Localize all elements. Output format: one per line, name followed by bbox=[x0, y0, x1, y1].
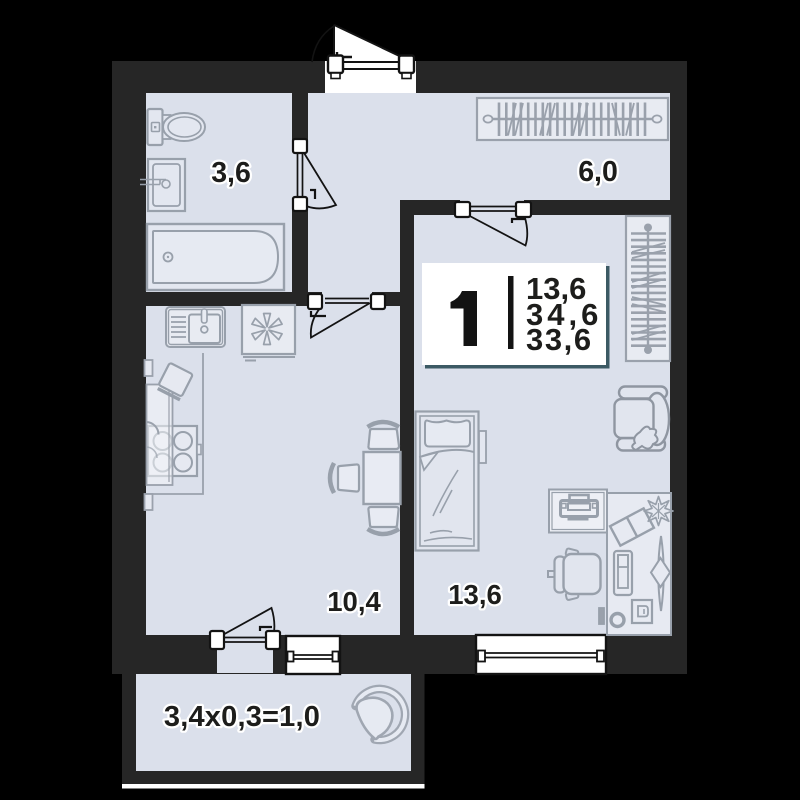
svg-text:3,6: 3,6 bbox=[211, 157, 251, 189]
svg-text:13,6: 13,6 bbox=[448, 579, 502, 610]
svg-text:3,4x0,3=1,0: 3,4x0,3=1,0 bbox=[164, 701, 320, 733]
svg-text:33,6: 33,6 bbox=[526, 322, 593, 357]
svg-text:6,0: 6,0 bbox=[578, 156, 618, 188]
svg-text:10,4: 10,4 bbox=[327, 586, 381, 617]
